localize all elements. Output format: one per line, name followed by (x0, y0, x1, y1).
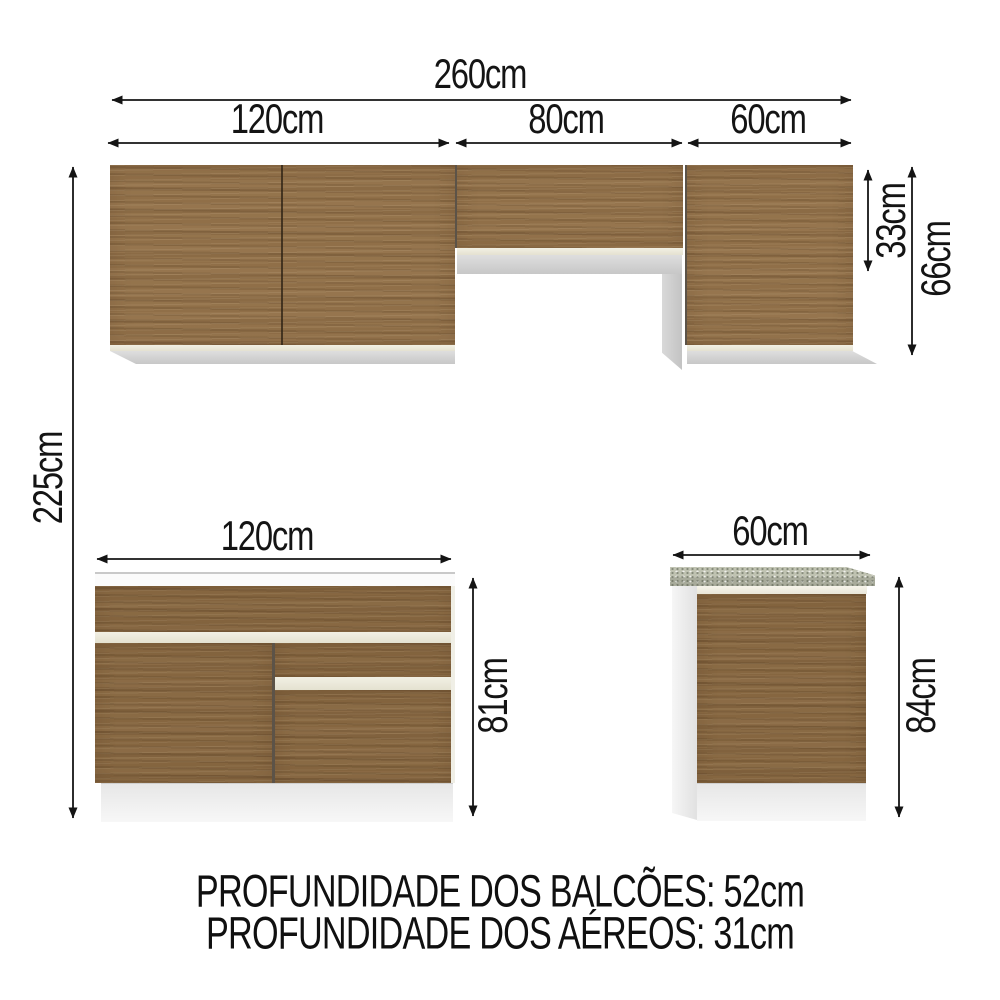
upper-mid-left-gap (455, 165, 457, 248)
dimension-arrows-layer (0, 0, 1000, 1000)
sink-cabinet-side-edge (451, 586, 455, 783)
base-right-plinth (697, 783, 866, 821)
upper-left-underside (110, 351, 455, 364)
upper-left-bottom-edge (110, 345, 455, 351)
base-right-side-panel (672, 586, 697, 820)
upper-cabinet-middle-door (457, 165, 683, 248)
sink-cabinet-left-door (95, 643, 272, 783)
label-upper-left-width: 120cm (231, 98, 323, 140)
upper-cabinet-right-door (687, 165, 853, 345)
upper-right-underside (687, 351, 877, 364)
label-base-right-height: 84cm (900, 658, 942, 733)
label-upper-mid-height: 33cm (870, 183, 912, 258)
label-base-left-height: 81cm (472, 658, 514, 733)
label-upper-mid-width: 80cm (528, 98, 603, 140)
upper-left-door-gap (281, 165, 283, 345)
base-right-door (697, 594, 866, 783)
right-cabinet-side-panel (662, 274, 682, 370)
upper-right-bottom-edge (687, 345, 853, 351)
label-upper-height: 66cm (915, 221, 957, 296)
upper-right-door-gap (685, 165, 687, 345)
sink-cabinet-drawer (275, 643, 453, 677)
label-base-left-width: 120cm (221, 515, 313, 557)
sink-cabinet-gap-2 (275, 677, 453, 690)
note-uppers-depth: PROFUNDIDADE DOS AÉREOS: 31cm (206, 911, 794, 956)
base-right-top-rail (697, 586, 867, 594)
sink-cabinet-gap-1 (95, 632, 453, 643)
label-total-height: 225cm (27, 432, 69, 524)
label-total-width: 260cm (434, 53, 526, 95)
sink-cabinet-right-door (275, 690, 453, 783)
base-right-countertop (670, 567, 875, 586)
sink-cabinet-plinth (101, 783, 453, 822)
label-upper-right-width: 60cm (730, 98, 805, 140)
upper-mid-bottom-edge (457, 248, 683, 255)
label-base-right-width: 60cm (732, 510, 807, 552)
sink-cabinet-top-panel (95, 586, 453, 632)
cabinet-dimensions-diagram: 260cm 120cm 80cm 60cm 33cm 66cm 225cm 12… (0, 0, 1000, 1000)
upper-mid-underside (457, 255, 682, 274)
